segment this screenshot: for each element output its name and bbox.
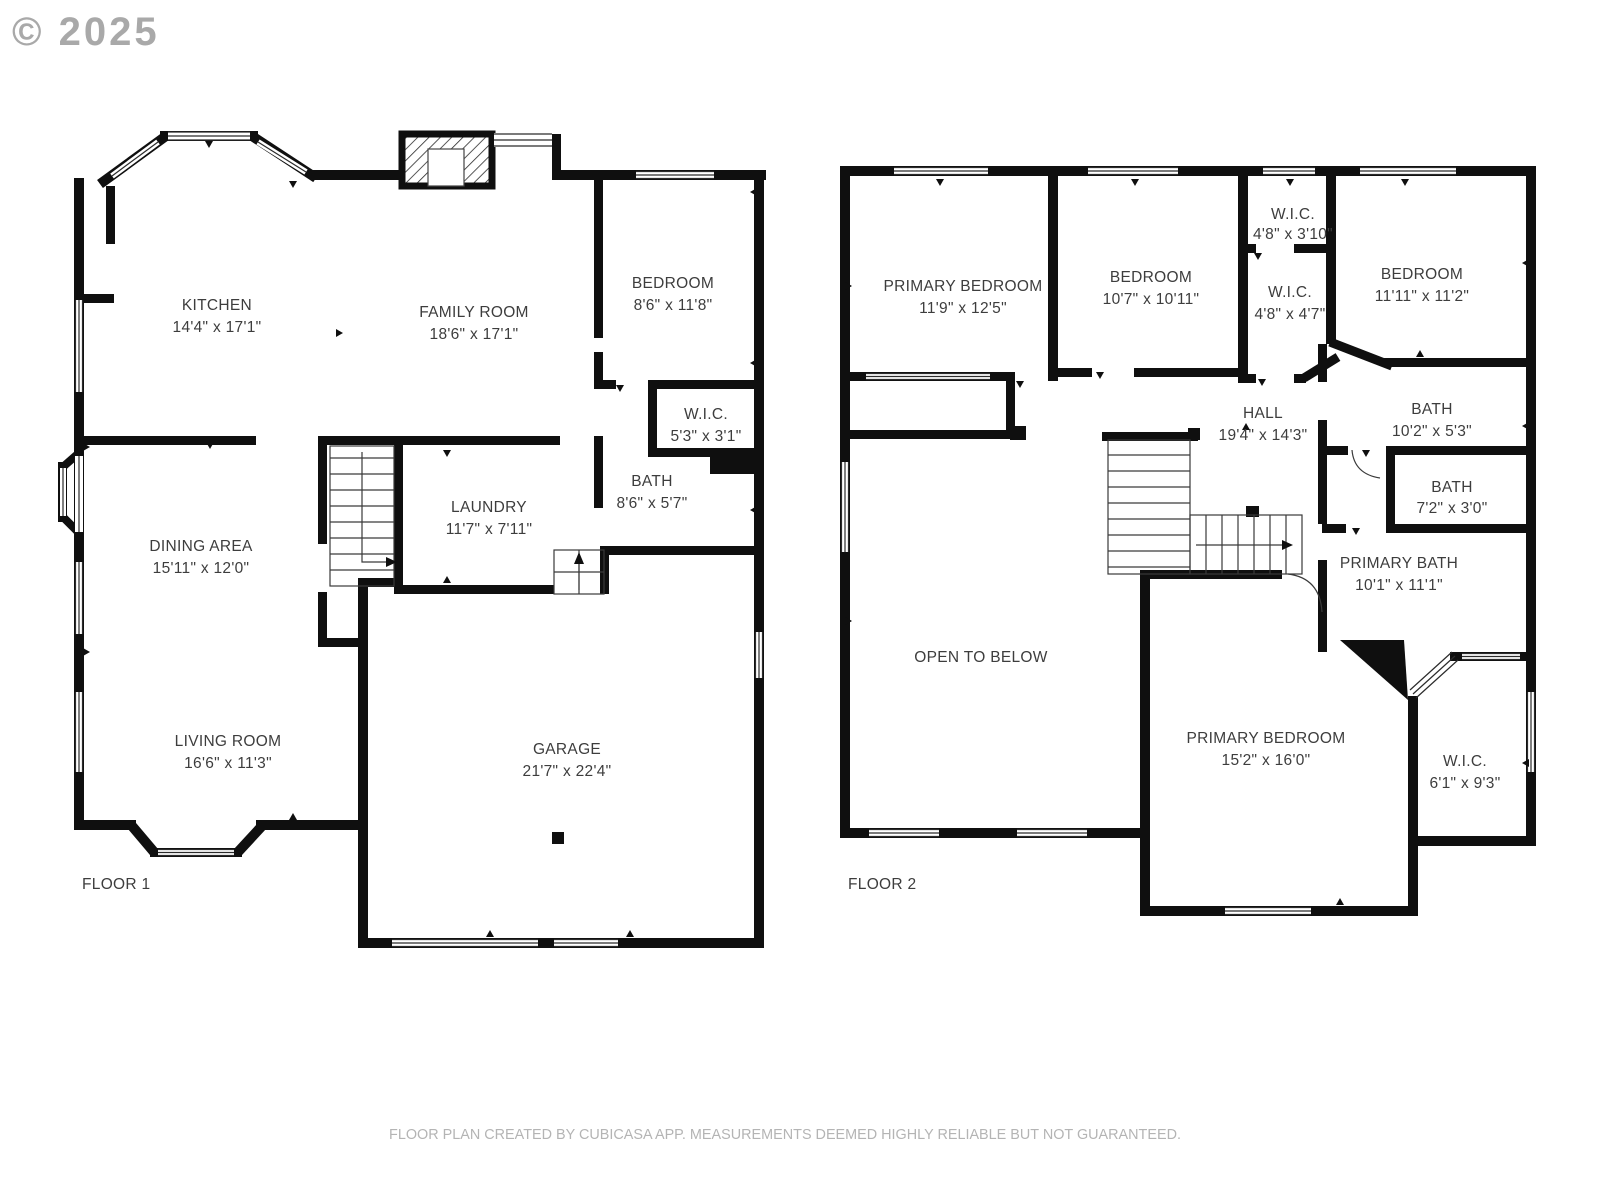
- floor1-stairs-icon: [330, 446, 397, 586]
- floor1-plan: KITCHEN 14'4" x 17'1" FAMILY ROOM 18'6" …: [58, 131, 766, 948]
- hall-dims: 19'4" x 14'3": [1219, 427, 1308, 444]
- fireplace-icon: [402, 134, 492, 186]
- disclaimer-text: FLOOR PLAN CREATED BY CUBICASA APP. MEAS…: [31, 1126, 1538, 1143]
- floor1-label: FLOOR 1: [82, 876, 150, 893]
- garage-name: GARAGE: [533, 741, 601, 758]
- bath-small-name: BATH: [1431, 479, 1472, 496]
- bedroom2-dims: 10'7" x 10'11": [1103, 291, 1200, 308]
- bedroom1-name: BEDROOM: [632, 275, 714, 292]
- primary-bedroom2-dims: 15'2" x 16'0": [1222, 752, 1311, 769]
- bedroom3-dims: 11'11" x 11'2": [1375, 288, 1469, 305]
- hall-name: HALL: [1243, 405, 1283, 422]
- garage-dims: 21'7" x 22'4": [523, 763, 612, 780]
- bedroom3-name: BEDROOM: [1381, 266, 1463, 283]
- dining-dims: 15'11" x 12'0": [153, 560, 250, 577]
- wic-top-name: W.I.C.: [1271, 206, 1315, 223]
- family-room-dims: 18'6" x 17'1": [430, 326, 519, 343]
- floor2-label: FLOOR 2: [848, 876, 916, 893]
- primary-bath-name: PRIMARY BATH: [1340, 555, 1458, 572]
- bedroom2-name: BEDROOM: [1110, 269, 1192, 286]
- laundry-dims: 11'7" x 7'11": [446, 521, 533, 538]
- kitchen-name: KITCHEN: [182, 297, 252, 314]
- family-room-name: FAMILY ROOM: [419, 304, 529, 321]
- wic-bottom-name: W.I.C.: [1443, 753, 1487, 770]
- primary-bedroom1-dims: 11'9" x 12'5": [919, 300, 1007, 317]
- floor2-room-labels: PRIMARY BEDROOM 11'9" x 12'5" BEDROOM 10…: [848, 206, 1501, 893]
- floor1-room-labels: KITCHEN 14'4" x 17'1" FAMILY ROOM 18'6" …: [82, 275, 742, 893]
- floor-plan-canvas: KITCHEN 14'4" x 17'1" FAMILY ROOM 18'6" …: [0, 0, 1600, 1200]
- living-dims: 16'6" x 11'3": [184, 755, 272, 772]
- bath-small-dims: 7'2" x 3'0": [1416, 500, 1487, 517]
- living-name: LIVING ROOM: [175, 733, 282, 750]
- entry-steps-icon: [554, 550, 604, 594]
- bath1-dims: 8'6" x 5'7": [616, 495, 687, 512]
- laundry-name: LAUNDRY: [451, 499, 527, 516]
- wic-bottom-dims: 6'1" x 9'3": [1429, 775, 1500, 792]
- dining-name: DINING AREA: [149, 538, 253, 555]
- wic-top-dims: 4'8" x 3'10": [1253, 226, 1333, 243]
- wic1-dims: 5'3" x 3'1": [670, 428, 741, 445]
- bath-upper-name: BATH: [1411, 401, 1452, 418]
- bath1-name: BATH: [631, 473, 672, 490]
- floor2-plan: PRIMARY BEDROOM 11'9" x 12'5" BEDROOM 10…: [840, 166, 1536, 916]
- primary-bedroom2-name: PRIMARY BEDROOM: [1187, 730, 1346, 747]
- primary-bath-dims: 10'1" x 11'1": [1355, 577, 1443, 594]
- bath-upper-dims: 10'2" x 5'3": [1392, 423, 1472, 440]
- bedroom1-dims: 8'6" x 11'8": [634, 297, 713, 314]
- floor2-stairs-icon: [1108, 440, 1302, 574]
- kitchen-dims: 14'4" x 17'1": [173, 319, 262, 336]
- wic1-name: W.I.C.: [684, 406, 728, 423]
- wic-mid-dims: 4'8" x 4'7": [1254, 306, 1325, 323]
- primary-bedroom1-name: PRIMARY BEDROOM: [884, 278, 1043, 295]
- open-to-below-label: OPEN TO BELOW: [914, 649, 1047, 666]
- wic-mid-name: W.I.C.: [1268, 284, 1312, 301]
